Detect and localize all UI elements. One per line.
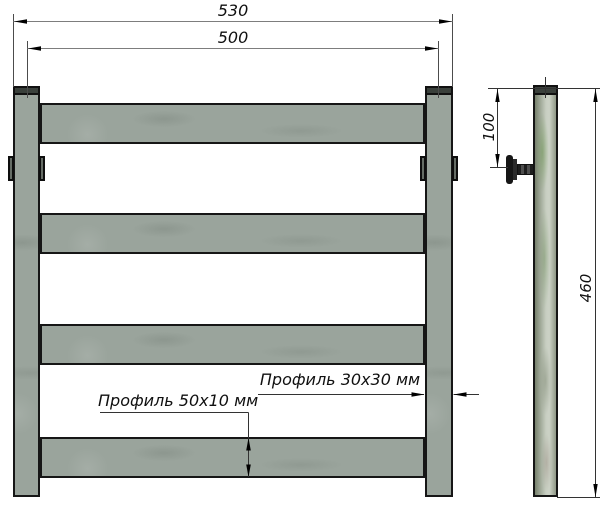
dim-460-label: 460 bbox=[577, 268, 595, 308]
dim-500-label: 500 bbox=[178, 29, 288, 47]
dim-500 bbox=[28, 41, 439, 98]
dimension-annotations-layer bbox=[0, 0, 600, 510]
dim-530 bbox=[14, 14, 453, 87]
post-profile-label: Профиль 30x30 мм bbox=[256, 371, 424, 389]
leader-crossbar-profile bbox=[100, 413, 251, 478]
leader-post-profile bbox=[258, 392, 479, 397]
crossbar-profile-label: Профиль 50x10 мм bbox=[98, 392, 250, 410]
dim-100-label: 100 bbox=[480, 107, 498, 147]
technical-drawing-canvas: 530 500 Профиль 50x10 мм Профиль 30x30 м… bbox=[0, 0, 600, 510]
dim-530-label: 530 bbox=[178, 2, 288, 20]
